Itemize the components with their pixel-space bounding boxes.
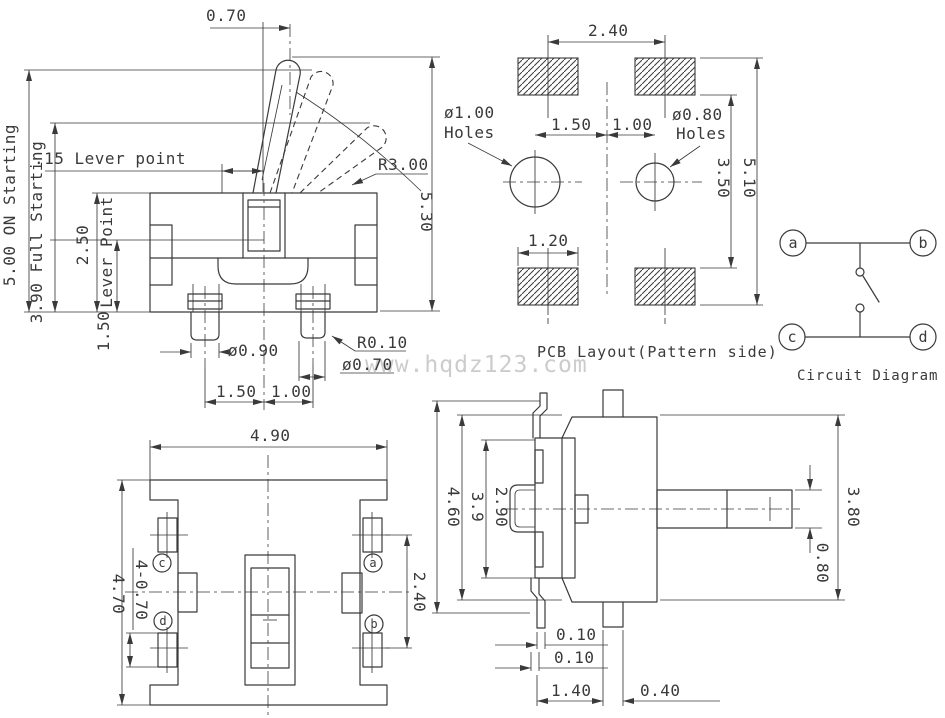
dim-pin-to-tab: 1.40 [551, 681, 592, 700]
pcb-pads [503, 35, 702, 324]
front-view: 0.70 5.00 ON Starting 3.90 Full Starting… [0, 6, 440, 410]
side-view: 4.60 3.9 2.90 3.80 0.80 0.10 0. [432, 390, 863, 706]
dim-tab-width: 0.40 [640, 681, 681, 700]
bottom-dimensions: 4.90 4.70 4-0.70 2.40 [109, 426, 429, 705]
dim-pin-size: 4-0.70 [132, 560, 151, 621]
dim-overall-height: 5.30 [417, 192, 436, 233]
terminal-b-label: b [918, 234, 927, 252]
bottom-terminal-b: b [370, 617, 377, 631]
circuit-diagram: a b c d Circuit Diagram [779, 230, 938, 384]
dim-lever-point-label: Lever Point [97, 196, 116, 307]
dim-pin-dia-right: ø0.70 [342, 355, 393, 374]
circuit-caption: Circuit Diagram [797, 368, 938, 384]
bottom-terminal-c: c [158, 556, 165, 570]
dim-overall-height-side: 4.60 [444, 487, 463, 528]
bottom-view: c d a b 4.90 4.70 4-0.70 2.40 [109, 426, 429, 718]
pcb-dimensions: 2.40 ø1.00 Holes ø0.80 Holes 1.50 1.00 3… [444, 21, 763, 305]
dim-pin-dia-left: ø0.90 [228, 341, 279, 360]
terminal-a-label: a [788, 234, 797, 252]
dim-tip-offset: 0.70 [206, 6, 247, 25]
side-dimensions: 4.60 3.9 2.90 3.80 0.80 0.10 0. [432, 401, 863, 706]
technical-drawing: www.hqdz123.com [0, 0, 945, 718]
drawing-sheet: www.hqdz123.com [0, 0, 945, 718]
dim-hole-left-dia: ø1.00 [444, 103, 495, 122]
pcb-layout-view: 2.40 ø1.00 Holes ø0.80 Holes 1.50 1.00 3… [444, 21, 778, 361]
terminal-c-label: c [787, 328, 796, 346]
front-dimensions: 0.70 5.00 ON Starting 3.90 Full Starting… [0, 6, 440, 408]
dim-shaft-dia: 0.80 [813, 543, 832, 584]
dim-block-height: 3.80 [844, 487, 863, 528]
switch-blade [863, 276, 879, 302]
dim-row-span: 3.50 [714, 158, 733, 199]
terminal-d-label: d [918, 328, 927, 346]
dim-pin-pitch-left: 1.50 [216, 382, 257, 401]
dim-lever-point-height: 1.50 [94, 311, 113, 352]
dim-gap-top: 0.10 [556, 625, 597, 644]
dim-lever-point-h: .15 Lever point [34, 149, 186, 168]
dim-gap-bottom: 0.10 [554, 648, 595, 667]
pcb-caption: PCB Layout(Pattern side) [537, 343, 778, 361]
dim-lever-radius: R3.00 [378, 155, 429, 174]
dim-width: 4.90 [250, 426, 291, 445]
dim-pad-width: 1.20 [528, 231, 569, 250]
dim-full-starting: 3.90 Full Starting [27, 141, 46, 323]
dim-height: 4.70 [109, 574, 128, 615]
dim-housing-height: 2.90 [492, 487, 511, 528]
label-hole-left: Holes [444, 123, 495, 142]
side-body [505, 390, 800, 628]
dim-hole-pitch-right: 1.00 [612, 115, 653, 134]
bottom-terminal-d: d [159, 614, 166, 628]
dim-hole-pitch-left: 1.50 [551, 115, 592, 134]
dim-pad-pitch: 2.40 [588, 21, 629, 40]
dim-body-height: 2.50 [73, 225, 92, 266]
bottom-terminal-a: a [369, 556, 376, 570]
label-hole-right: Holes [676, 124, 727, 143]
dim-hole-right-dia: ø0.80 [672, 105, 723, 124]
dim-body-height-side: 3.9 [468, 492, 487, 522]
bottom-pins [150, 512, 390, 673]
dim-pin-pitch: 2.40 [410, 572, 429, 613]
dim-on-starting: 5.00 ON Starting [0, 124, 19, 286]
switch-body-outline [150, 183, 377, 410]
dim-pin-tip-radius: R0.10 [357, 333, 408, 352]
dim-overall-span: 5.10 [740, 158, 759, 199]
dim-pin-pitch-right: 1.00 [271, 382, 312, 401]
